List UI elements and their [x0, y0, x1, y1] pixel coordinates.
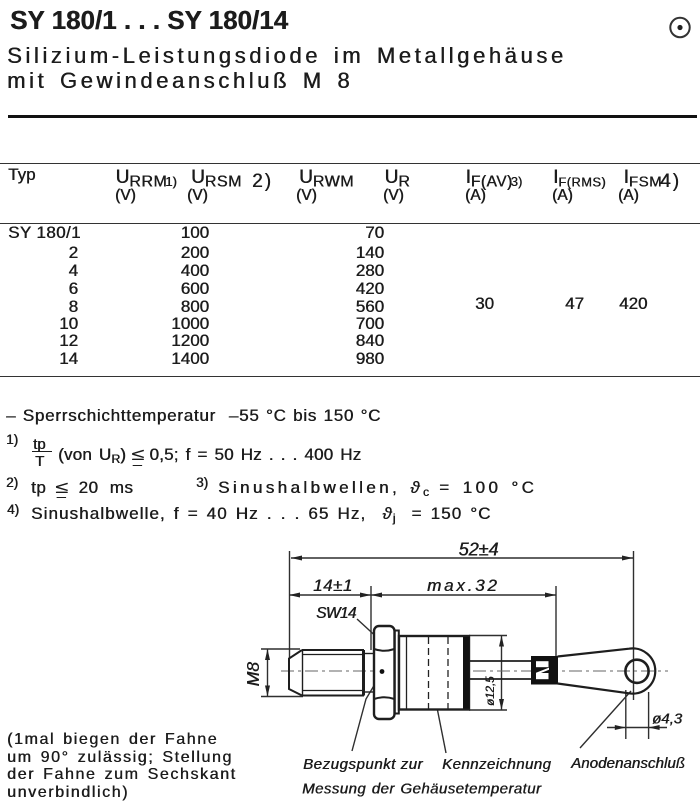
svg-text:Bezugspunkt zur: Bezugspunkt zur	[303, 756, 423, 773]
svg-text:Kennzeichnung: Kennzeichnung	[442, 756, 551, 773]
svg-text:max.32: max.32	[427, 576, 500, 595]
svg-text:Messung der Gehäusetemperatur: Messung der Gehäusetemperatur	[302, 781, 542, 798]
svg-text:M8: M8	[243, 662, 263, 687]
svg-text:ø4,3: ø4,3	[652, 711, 683, 728]
svg-text:52±4: 52±4	[459, 540, 499, 560]
svg-text:Anodenanschluß: Anodenanschluß	[570, 755, 685, 772]
svg-text:14±1: 14±1	[313, 576, 353, 595]
svg-text:SW14: SW14	[316, 605, 357, 622]
svg-text:ø12,5: ø12,5	[485, 676, 497, 706]
